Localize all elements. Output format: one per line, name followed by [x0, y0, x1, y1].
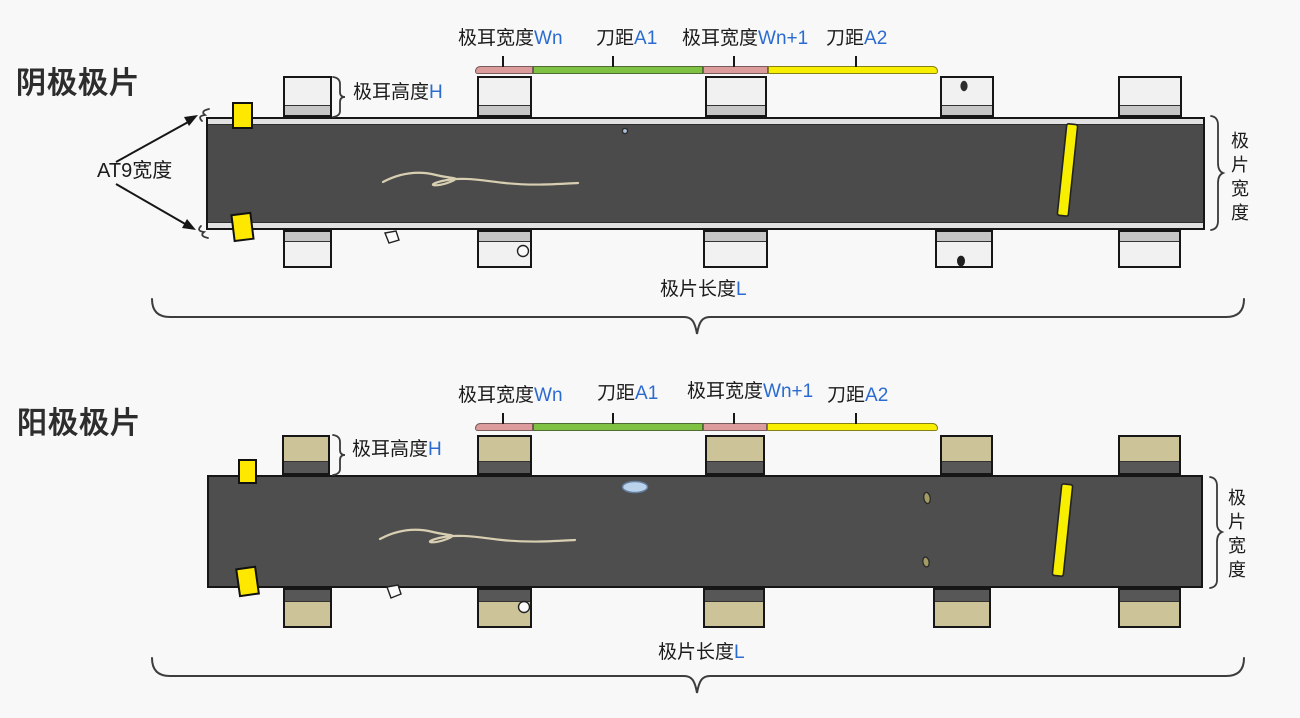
cathode-tab — [935, 230, 993, 268]
tab-height-bracket — [333, 435, 345, 475]
label-var: L — [736, 279, 747, 300]
knife-pitch-a1-bar — [533, 423, 703, 431]
anode-tab — [1118, 435, 1181, 475]
anode-tab — [282, 435, 330, 475]
cathode-tab — [940, 76, 994, 117]
label-var: Wn — [534, 385, 563, 406]
sheet-length-label: 极片长度L — [658, 643, 745, 664]
label-text: 刀距 — [827, 385, 865, 406]
annotation-overlay — [0, 0, 1300, 718]
knife-pitch-a1-label: 刀距A1 — [597, 384, 658, 405]
at9-arrow — [116, 184, 187, 225]
label-tick — [855, 56, 857, 67]
knife-pitch-a2-label: 刀距A2 — [826, 29, 887, 50]
knife-pitch-a2-bar — [768, 66, 938, 74]
label-var: Wn — [534, 28, 563, 49]
tab-width-wn-bar — [475, 66, 533, 74]
cathode-tab — [705, 76, 767, 117]
tab-weld-band — [1120, 461, 1179, 473]
tab-height-bracket — [333, 77, 345, 117]
tab-weld-band — [707, 461, 763, 473]
knife-pitch-a2-bar — [767, 423, 938, 431]
sheet-width-bracket — [1211, 116, 1223, 230]
label-tick — [502, 56, 504, 67]
tab-weld-band — [705, 590, 763, 602]
anode-tab — [940, 435, 993, 475]
anode-tab — [705, 435, 765, 475]
sheet-width-label: 极片宽度 — [1223, 488, 1249, 584]
label-tick — [733, 413, 735, 424]
tab-weld-band — [285, 232, 330, 242]
cathode-title: 阴极极片 — [16, 58, 140, 102]
at9-arrow — [116, 121, 190, 162]
label-tick — [733, 56, 735, 67]
sheet-width-label: 极片宽度 — [1226, 131, 1252, 227]
anode-tab — [477, 588, 532, 628]
edge-notch-defect — [385, 231, 399, 243]
label-var: L — [734, 642, 745, 663]
tab-width-wn-label: 极耳宽度Wn — [458, 386, 563, 407]
tab-width-wn1-bar — [703, 423, 767, 431]
label-var: H — [428, 439, 442, 460]
label-text: 极耳高度 — [353, 82, 429, 103]
anode-sheet — [207, 475, 1203, 588]
tab-weld-band — [705, 232, 766, 242]
anode-tab — [477, 435, 532, 475]
label-var: Wn+1 — [758, 28, 808, 49]
tab-weld-band — [1120, 105, 1180, 115]
tab-height-label: 极耳高度H — [353, 83, 443, 104]
label-text: 极片长度 — [658, 642, 734, 663]
tab-weld-band — [479, 105, 530, 115]
tab-weld-band — [479, 232, 530, 242]
anode-tab — [933, 588, 991, 628]
tab-width-wn-bar — [475, 423, 533, 431]
cathode-tab — [477, 230, 532, 268]
sheet-length-brace — [152, 299, 1244, 334]
label-text: 极耳宽度 — [458, 28, 534, 49]
at9-arrowhead — [184, 115, 198, 126]
electrode-sheet-diagram: 阴极极片 极耳宽度Wn 刀距A1 极耳宽度Wn+1 刀距A2 极耳高度H AT9… — [0, 0, 1300, 718]
tab-weld-band — [479, 461, 530, 473]
sheet-edge-band — [208, 222, 1203, 228]
tab-weld-band — [935, 590, 989, 602]
label-text: 刀距 — [597, 383, 635, 404]
knife-pitch-a1-bar — [533, 66, 703, 74]
tab-weld-band — [942, 105, 992, 115]
label-tick — [502, 413, 504, 424]
tab-width-wn1-label: 极耳宽度Wn+1 — [682, 29, 808, 50]
tab-weld-band — [1120, 232, 1179, 242]
anode-tab — [283, 588, 332, 628]
cathode-tab — [283, 230, 332, 268]
label-tick — [612, 413, 614, 424]
anode-tab — [1118, 588, 1181, 628]
cathode-tab — [477, 76, 532, 117]
sheet-length-label: 极片长度L — [660, 280, 747, 301]
label-var: Wn+1 — [763, 381, 813, 402]
label-text: 极耳宽度 — [682, 28, 758, 49]
label-var: A2 — [864, 28, 887, 49]
at9-arrowhead — [182, 219, 196, 230]
tab-weld-band — [1120, 590, 1179, 602]
label-tick — [855, 413, 857, 424]
label-text: 极耳高度 — [352, 439, 428, 460]
tab-weld-band — [942, 461, 991, 473]
tab-weld-band — [707, 105, 765, 115]
cathode-tab — [1118, 230, 1181, 268]
sheet-edge-band — [208, 119, 1203, 125]
label-var: A2 — [865, 385, 888, 406]
label-var: H — [429, 82, 443, 103]
label-var: A1 — [634, 28, 657, 49]
anode-title: 阳极极片 — [17, 398, 141, 442]
cathode-tab — [283, 76, 332, 117]
cathode-sheet — [206, 117, 1205, 230]
label-var: A1 — [635, 383, 658, 404]
label-text: 极片长度 — [660, 279, 736, 300]
anode-tab — [703, 588, 765, 628]
at9-width-label: AT9宽度 — [97, 160, 172, 182]
tab-weld-band — [479, 590, 530, 602]
label-text: 刀距 — [596, 28, 634, 49]
label-text: 极耳宽度 — [687, 381, 763, 402]
cathode-tab — [1118, 76, 1182, 117]
label-text: 极耳宽度 — [458, 385, 534, 406]
label-text: 刀距 — [826, 28, 864, 49]
tab-height-label: 极耳高度H — [352, 440, 442, 461]
knife-pitch-a2-label: 刀距A2 — [827, 386, 888, 407]
tab-weld-band — [284, 461, 328, 473]
label-tick — [612, 56, 614, 67]
tab-weld-band — [285, 105, 330, 115]
tab-weld-band — [285, 590, 330, 602]
knife-pitch-a1-label: 刀距A1 — [596, 29, 657, 50]
tab-width-wn-label: 极耳宽度Wn — [458, 29, 563, 50]
cathode-tab — [703, 230, 768, 268]
sheet-width-bracket — [1210, 477, 1222, 588]
tab-width-wn1-bar — [703, 66, 768, 74]
tab-width-wn1-label: 极耳宽度Wn+1 — [687, 382, 813, 403]
tab-weld-band — [937, 232, 991, 242]
